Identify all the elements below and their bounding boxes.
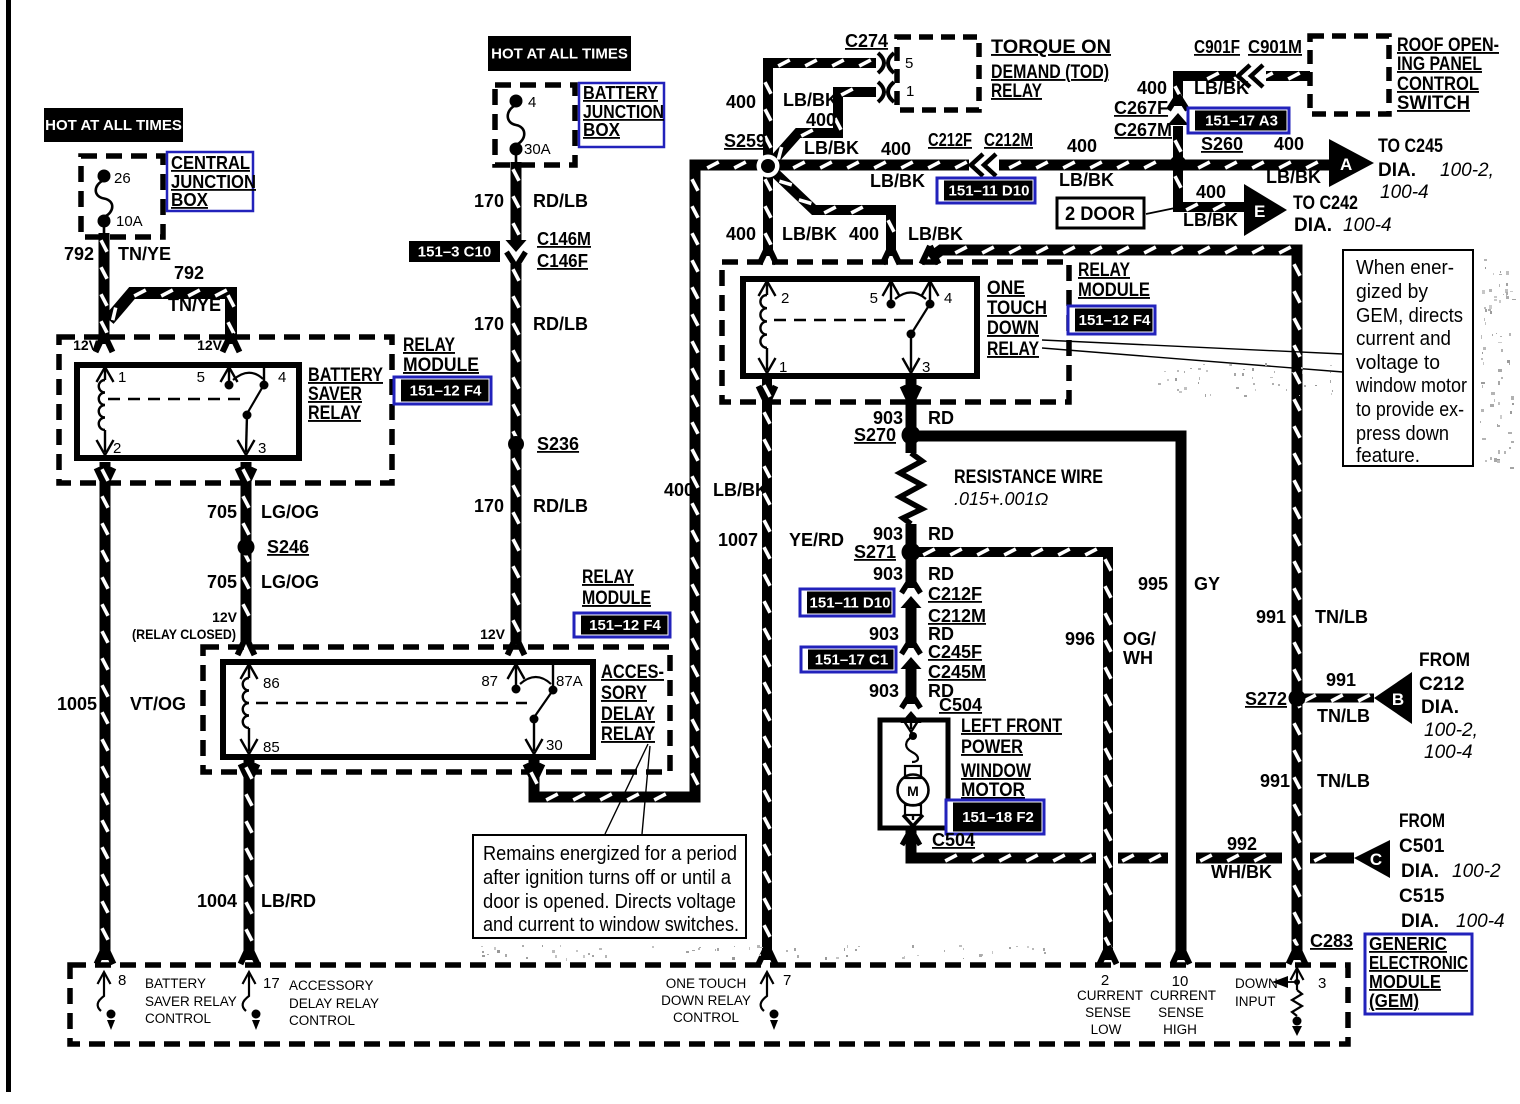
svg-text:C212: C212: [1419, 674, 1464, 695]
svg-text:87A: 87A: [556, 673, 583, 690]
svg-text:FROM: FROM: [1419, 650, 1470, 671]
svg-text:C504: C504: [932, 830, 975, 850]
svg-text:ACCESSORY: ACCESSORY: [289, 978, 374, 993]
svg-text:TN/LB: TN/LB: [1315, 607, 1368, 627]
svg-text:C245M: C245M: [928, 662, 986, 682]
svg-text:RD/LB: RD/LB: [533, 496, 588, 516]
svg-text:ELECTRONIC: ELECTRONIC: [1369, 953, 1468, 973]
svg-text:705: 705: [207, 502, 237, 522]
svg-text:87: 87: [481, 673, 498, 690]
svg-text:CONTROL: CONTROL: [145, 1011, 211, 1026]
svg-text:DOWN: DOWN: [1235, 976, 1278, 991]
svg-text:2: 2: [113, 440, 121, 457]
svg-text:C212M: C212M: [984, 130, 1033, 150]
svg-text:LB/BK: LB/BK: [713, 480, 768, 500]
svg-text:OG/: OG/: [1123, 629, 1156, 649]
svg-text:C501: C501: [1399, 836, 1445, 857]
svg-text:30: 30: [546, 737, 563, 754]
svg-text:400: 400: [726, 92, 756, 112]
svg-text:MODULE: MODULE: [1078, 280, 1150, 301]
svg-text:ROOF OPEN-: ROOF OPEN-: [1397, 35, 1499, 56]
svg-text:.015+.001Ω: .015+.001Ω: [954, 489, 1049, 509]
svg-text:151–3 C10: 151–3 C10: [418, 244, 491, 261]
svg-text:JUNCTION: JUNCTION: [583, 102, 664, 122]
svg-text:HOT AT ALL TIMES: HOT AT ALL TIMES: [45, 117, 182, 134]
svg-text:B: B: [1392, 690, 1404, 709]
svg-text:1: 1: [118, 369, 126, 386]
svg-text:BATTERY: BATTERY: [583, 83, 658, 103]
svg-text:C267F: C267F: [1114, 98, 1168, 118]
svg-text:996: 996: [1065, 629, 1095, 649]
svg-text:gized by: gized by: [1356, 281, 1428, 303]
svg-text:C283: C283: [1310, 931, 1353, 951]
svg-text:BATTERY: BATTERY: [145, 976, 206, 991]
svg-text:after ignition turns off or un: after ignition turns off or until a: [483, 867, 732, 889]
svg-text:DEMAND (TOD): DEMAND (TOD): [991, 62, 1109, 83]
svg-text:RD/LB: RD/LB: [533, 191, 588, 211]
svg-text:S260: S260: [1201, 134, 1243, 154]
svg-text:YE/RD: YE/RD: [789, 530, 844, 550]
svg-text:903: 903: [869, 681, 899, 701]
svg-text:903: 903: [873, 524, 903, 544]
svg-text:LOW: LOW: [1091, 1022, 1122, 1037]
svg-text:MODULE: MODULE: [403, 355, 479, 376]
svg-text:LB/RD: LB/RD: [261, 891, 316, 911]
svg-text:DIA.: DIA.: [1378, 160, 1416, 181]
svg-text:100-2: 100-2: [1452, 861, 1501, 882]
svg-text:151–12 F4: 151–12 F4: [1079, 312, 1151, 329]
svg-text:LB/BK: LB/BK: [1183, 210, 1238, 230]
svg-text:100-4: 100-4: [1424, 742, 1473, 763]
svg-text:window motor: window motor: [1355, 375, 1467, 397]
svg-text:DIA.: DIA.: [1401, 911, 1439, 932]
svg-text:1007: 1007: [718, 530, 758, 550]
svg-text:400: 400: [664, 480, 694, 500]
svg-text:991: 991: [1260, 771, 1290, 791]
svg-text:feature.: feature.: [1356, 445, 1420, 467]
svg-text:C901M: C901M: [1248, 37, 1302, 57]
svg-text:SENSE: SENSE: [1158, 1005, 1204, 1020]
svg-text:S270: S270: [854, 425, 896, 445]
svg-text:30A: 30A: [524, 141, 551, 158]
svg-text:CURRENT: CURRENT: [1150, 988, 1216, 1003]
svg-text:WH/BK: WH/BK: [1211, 862, 1272, 882]
svg-text:MOTOR: MOTOR: [961, 780, 1025, 801]
svg-text:MODULE: MODULE: [582, 588, 651, 609]
svg-text:26: 26: [114, 170, 131, 187]
svg-text:4: 4: [528, 94, 536, 111]
svg-text:S236: S236: [537, 434, 579, 454]
svg-text:TN/LB: TN/LB: [1317, 706, 1370, 726]
svg-text:TOUCH: TOUCH: [987, 298, 1047, 319]
svg-text:1004: 1004: [197, 891, 237, 911]
svg-text:C267M: C267M: [1114, 120, 1172, 140]
svg-text:LB/BK: LB/BK: [782, 224, 837, 244]
svg-text:TO C242: TO C242: [1293, 193, 1358, 214]
svg-text:LG/OG: LG/OG: [261, 502, 319, 522]
svg-text:BATTERY: BATTERY: [308, 365, 383, 386]
svg-text:LB/BK: LB/BK: [1059, 170, 1114, 190]
svg-text:RELAY: RELAY: [987, 339, 1039, 360]
svg-text:400: 400: [849, 224, 879, 244]
svg-text:903: 903: [869, 624, 899, 644]
svg-text:DIA.: DIA.: [1421, 697, 1459, 718]
svg-text:C245F: C245F: [928, 642, 982, 662]
svg-text:SENSE: SENSE: [1085, 1005, 1131, 1020]
svg-text:DELAY RELAY: DELAY RELAY: [289, 996, 379, 1011]
svg-text:DIA.: DIA.: [1294, 215, 1332, 236]
svg-text:LB/BK: LB/BK: [783, 90, 838, 110]
svg-text:(RELAY CLOSED): (RELAY CLOSED): [132, 626, 236, 642]
svg-text:RD: RD: [928, 624, 954, 644]
svg-text:DIA.: DIA.: [1401, 861, 1439, 882]
svg-text:current and: current and: [1356, 328, 1451, 350]
svg-text:to provide ex-: to provide ex-: [1356, 399, 1464, 421]
svg-text:792: 792: [64, 244, 94, 264]
svg-text:(GEM): (GEM): [1369, 991, 1419, 1011]
svg-text:SWITCH: SWITCH: [1397, 93, 1470, 114]
svg-text:86: 86: [263, 675, 280, 692]
svg-text:LB/BK: LB/BK: [804, 138, 859, 158]
svg-text:400: 400: [1274, 134, 1304, 154]
svg-text:HIGH: HIGH: [1163, 1022, 1197, 1037]
svg-text:85: 85: [263, 739, 280, 756]
svg-text:151–17 C1: 151–17 C1: [815, 652, 888, 669]
svg-text:400: 400: [881, 139, 911, 159]
svg-text:RD: RD: [928, 564, 954, 584]
svg-text:2 DOOR: 2 DOOR: [1065, 204, 1135, 225]
svg-text:HOT AT ALL TIMES: HOT AT ALL TIMES: [491, 46, 628, 63]
svg-text:C146M: C146M: [537, 229, 591, 249]
svg-text:MODULE: MODULE: [1369, 972, 1441, 992]
svg-text:DOWN RELAY: DOWN RELAY: [661, 993, 751, 1008]
svg-text:100-2,: 100-2,: [1424, 720, 1478, 741]
svg-text:3: 3: [258, 440, 266, 457]
svg-text:3: 3: [922, 359, 930, 376]
svg-text:JUNCTION: JUNCTION: [171, 172, 256, 192]
svg-text:12V: 12V: [212, 609, 238, 625]
svg-text:S259: S259: [724, 131, 766, 151]
svg-text:1005: 1005: [57, 694, 97, 714]
svg-text:C274: C274: [845, 31, 888, 51]
svg-text:100-4: 100-4: [1343, 215, 1392, 236]
svg-text:BOX: BOX: [171, 190, 208, 210]
svg-text:LEFT FRONT: LEFT FRONT: [961, 716, 1062, 737]
svg-text:RD: RD: [928, 524, 954, 544]
svg-text:400: 400: [726, 224, 756, 244]
svg-text:903: 903: [873, 564, 903, 584]
svg-text:C504: C504: [939, 695, 982, 715]
svg-text:DOWN: DOWN: [987, 318, 1039, 339]
svg-text:5: 5: [905, 55, 913, 72]
svg-text:12V: 12V: [480, 626, 506, 642]
svg-text:LB/BK: LB/BK: [908, 224, 963, 244]
svg-text:RD: RD: [928, 408, 954, 428]
svg-text:2: 2: [781, 290, 789, 307]
svg-text:POWER: POWER: [961, 737, 1023, 758]
svg-text:400: 400: [1196, 182, 1226, 202]
svg-text:10A: 10A: [116, 213, 143, 230]
svg-text:press down: press down: [1356, 423, 1449, 445]
svg-text:GY: GY: [1194, 574, 1220, 594]
svg-text:170: 170: [474, 496, 504, 516]
svg-text:C212F: C212F: [928, 130, 972, 150]
svg-text:151–12 F4: 151–12 F4: [410, 383, 482, 400]
svg-text:1: 1: [779, 359, 787, 376]
svg-text:100-4: 100-4: [1380, 182, 1429, 203]
svg-text:DELAY: DELAY: [601, 704, 655, 725]
svg-text:TN/YE: TN/YE: [168, 295, 221, 315]
svg-text:151–11 D10: 151–11 D10: [810, 595, 891, 612]
svg-text:GENERIC: GENERIC: [1369, 934, 1447, 954]
svg-text:100-2,: 100-2,: [1440, 160, 1494, 181]
svg-text:151–17 A3: 151–17 A3: [1205, 113, 1278, 130]
svg-text:RELAY: RELAY: [991, 81, 1042, 102]
svg-text:C515: C515: [1399, 886, 1445, 907]
svg-text:C212F: C212F: [928, 584, 982, 604]
svg-text:C146F: C146F: [537, 251, 588, 271]
svg-text:3: 3: [1318, 975, 1326, 992]
svg-text:M: M: [907, 783, 919, 799]
svg-text:995: 995: [1138, 574, 1168, 594]
svg-text:ONE TOUCH: ONE TOUCH: [666, 976, 747, 991]
svg-text:S246: S246: [267, 537, 309, 557]
svg-text:A: A: [1340, 155, 1352, 174]
svg-text:151–12 F4: 151–12 F4: [589, 617, 661, 634]
svg-text:170: 170: [474, 191, 504, 211]
svg-text:4: 4: [944, 290, 952, 307]
svg-text:CURRENT: CURRENT: [1077, 988, 1143, 1003]
svg-text:LB/BK: LB/BK: [1194, 78, 1249, 98]
svg-text:RELAY: RELAY: [1078, 260, 1130, 281]
svg-text:C901F: C901F: [1194, 37, 1240, 57]
svg-text:C212M: C212M: [928, 606, 986, 626]
svg-text:5: 5: [870, 290, 878, 307]
svg-text:SAVER RELAY: SAVER RELAY: [145, 994, 237, 1009]
svg-text:400: 400: [1067, 136, 1097, 156]
svg-text:TN/LB: TN/LB: [1317, 771, 1370, 791]
svg-text:ACCES-: ACCES-: [601, 662, 664, 683]
svg-text:2: 2: [1101, 972, 1109, 989]
svg-text:TO C245: TO C245: [1378, 136, 1443, 157]
svg-text:RELAY: RELAY: [601, 724, 655, 745]
svg-text:TORQUE ON: TORQUE ON: [991, 37, 1111, 58]
svg-text:992: 992: [1227, 834, 1257, 854]
svg-text:BOX: BOX: [583, 120, 620, 140]
svg-text:5: 5: [197, 369, 205, 386]
svg-text:RESISTANCE WIRE: RESISTANCE WIRE: [954, 467, 1103, 488]
svg-text:400: 400: [806, 110, 836, 130]
svg-text:792: 792: [174, 263, 204, 283]
svg-text:CONTROL: CONTROL: [673, 1010, 739, 1025]
svg-text:SAVER: SAVER: [308, 384, 362, 405]
svg-text:INPUT: INPUT: [1235, 994, 1276, 1009]
svg-text:RELAY: RELAY: [582, 567, 634, 588]
svg-text:991: 991: [1326, 670, 1356, 690]
svg-text:C: C: [1370, 850, 1382, 869]
svg-text:TN/YE: TN/YE: [118, 244, 171, 264]
svg-text:RELAY: RELAY: [403, 335, 455, 356]
svg-text:ING PANEL: ING PANEL: [1397, 54, 1482, 75]
svg-text:When ener-: When ener-: [1356, 257, 1454, 279]
svg-text:WH: WH: [1123, 648, 1153, 668]
svg-text:CONTROL: CONTROL: [1397, 74, 1479, 95]
svg-text:LB/BK: LB/BK: [1266, 167, 1321, 187]
svg-text:RD/LB: RD/LB: [533, 314, 588, 334]
svg-text:Remains energized for a period: Remains energized for a period: [483, 843, 737, 865]
svg-text:17: 17: [263, 975, 280, 992]
svg-text:and current to window switches: and current to window switches.: [483, 914, 739, 936]
svg-text:WINDOW: WINDOW: [961, 761, 1031, 782]
svg-text:RELAY: RELAY: [308, 403, 361, 424]
svg-text:8: 8: [118, 972, 126, 989]
svg-text:991: 991: [1256, 607, 1286, 627]
svg-text:1: 1: [906, 83, 914, 100]
svg-text:FROM: FROM: [1399, 811, 1445, 832]
svg-text:ONE: ONE: [987, 278, 1025, 299]
svg-text:S272: S272: [1245, 689, 1287, 709]
svg-text:903: 903: [873, 408, 903, 428]
svg-text:151–11 D10: 151–11 D10: [949, 183, 1030, 200]
svg-text:E: E: [1254, 202, 1265, 221]
svg-text:4: 4: [278, 369, 286, 386]
svg-text:CONTROL: CONTROL: [289, 1013, 355, 1028]
svg-text:VT/OG: VT/OG: [130, 694, 186, 714]
svg-text:CENTRAL: CENTRAL: [171, 153, 250, 173]
svg-text:100-4: 100-4: [1456, 911, 1505, 932]
svg-text:SORY: SORY: [601, 683, 647, 704]
svg-text:7: 7: [783, 972, 791, 989]
svg-text:S271: S271: [854, 542, 896, 562]
svg-text:151–18 F2: 151–18 F2: [962, 809, 1034, 826]
svg-text:705: 705: [207, 572, 237, 592]
svg-text:LB/BK: LB/BK: [870, 171, 925, 191]
svg-text:400: 400: [1137, 78, 1167, 98]
svg-text:LG/OG: LG/OG: [261, 572, 319, 592]
svg-text:170: 170: [474, 314, 504, 334]
svg-text:GEM, directs: GEM, directs: [1356, 305, 1463, 327]
svg-text:door is opened. Directs voltag: door is opened. Directs voltage: [483, 891, 736, 913]
svg-text:voltage to: voltage to: [1356, 352, 1440, 374]
